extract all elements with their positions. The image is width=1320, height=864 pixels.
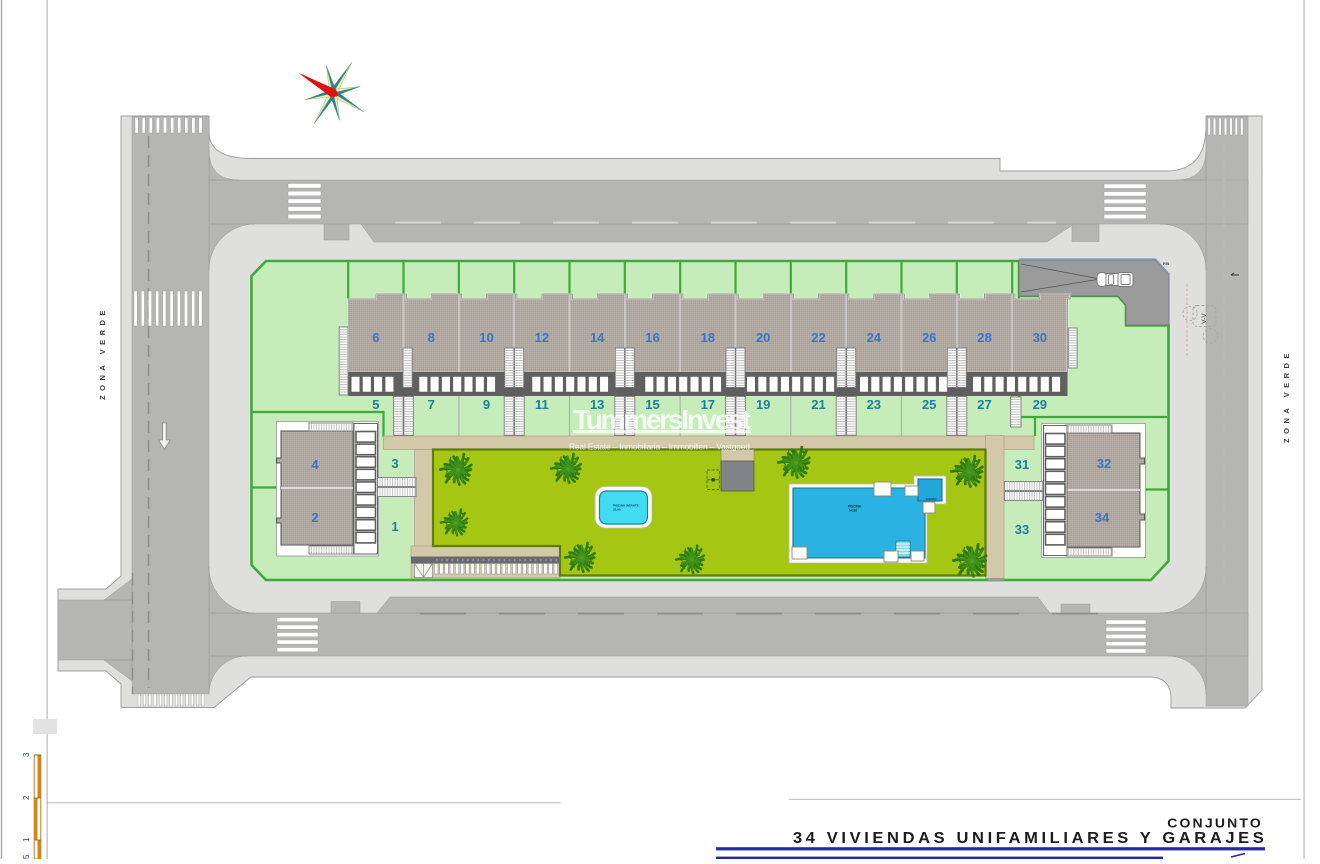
svg-text:21: 21 [811, 397, 825, 412]
svg-text:6: 6 [372, 330, 379, 345]
svg-text:3: 3 [22, 752, 31, 757]
svg-text:3: 3 [391, 456, 398, 471]
svg-text:2: 2 [22, 795, 31, 800]
svg-text:23: 23 [867, 397, 881, 412]
svg-text:12: 12 [535, 330, 549, 345]
svg-text:25: 25 [922, 397, 936, 412]
svg-text:28: 28 [977, 330, 991, 345]
svg-text:Real Estate – Inmobiliaria – I: Real Estate – Inmobiliaria – Immobilien … [569, 442, 750, 452]
svg-text:27: 27 [977, 397, 991, 412]
svg-text:ZONA VERDE: ZONA VERDE [1282, 349, 1291, 443]
svg-text:26: 26 [922, 330, 936, 345]
svg-text:34: 34 [1095, 510, 1110, 525]
svg-text:5: 5 [372, 397, 379, 412]
svg-text:1: 1 [22, 837, 31, 842]
svg-text:18: 18 [701, 330, 715, 345]
svg-text:20: 20 [756, 330, 770, 345]
svg-text:7: 7 [428, 397, 435, 412]
svg-text:11: 11 [535, 397, 549, 412]
svg-text:33: 33 [1015, 522, 1029, 537]
svg-text:10: 10 [479, 330, 493, 345]
svg-text:14: 14 [590, 330, 605, 345]
svg-text:5: 5 [22, 854, 31, 859]
svg-text:CONJUNTO: CONJUNTO [1167, 816, 1263, 830]
svg-text:20,00: 20,00 [613, 508, 621, 512]
svg-text:JACUZZI: JACUZZI [926, 497, 937, 501]
svg-text:29: 29 [1033, 397, 1047, 412]
svg-text:30: 30 [1033, 330, 1047, 345]
svg-text:2: 2 [311, 510, 318, 525]
svg-text:34 VIVIENDAS UNIFAMILIARES Y G: 34 VIVIENDAS UNIFAMILIARES Y GARAJES [793, 831, 1265, 847]
svg-text:22: 22 [811, 330, 825, 345]
svg-text:9: 9 [483, 397, 490, 412]
svg-text:19: 19 [756, 397, 770, 412]
svg-text:16: 16 [645, 330, 659, 345]
svg-text:31: 31 [1015, 457, 1029, 472]
svg-text:ZONA VERDE: ZONA VERDE [98, 306, 107, 400]
svg-text:8: 8 [428, 330, 435, 345]
svg-text:32: 32 [1097, 456, 1111, 471]
svg-text:P.B: P.B [1163, 261, 1169, 266]
svg-text:1: 1 [391, 519, 398, 534]
svg-text:4: 4 [311, 457, 319, 472]
svg-text:24: 24 [867, 330, 882, 345]
svg-text:94,38: 94,38 [849, 509, 857, 513]
svg-text:V-V: V-V [1201, 313, 1208, 324]
